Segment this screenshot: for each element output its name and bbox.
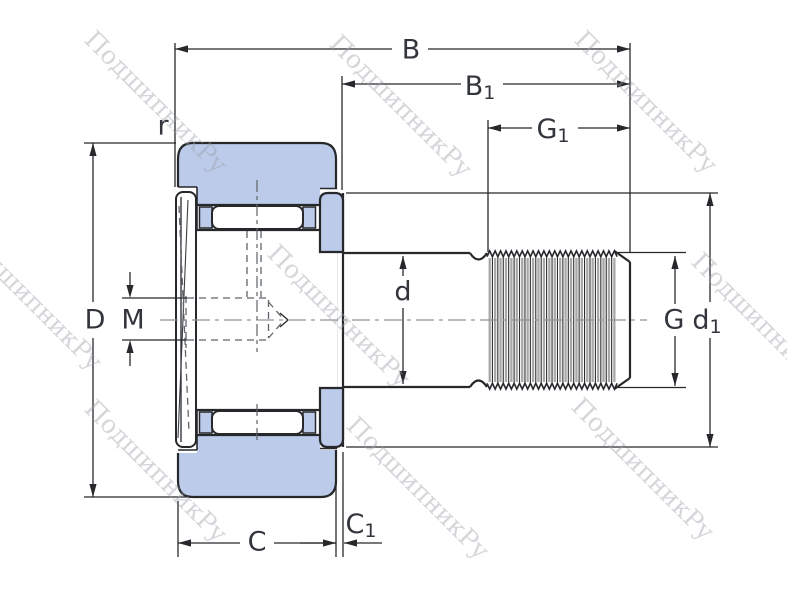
cam-follower-section-drawing: B B1 G1 r D M d G d1 C C1 ПодшипникРу По…	[0, 0, 787, 595]
thread-crest-bottom	[487, 383, 617, 389]
dim-label-d: d	[394, 277, 411, 308]
flange-collar-top	[320, 193, 343, 252]
dim-label-D: D	[85, 305, 106, 336]
watermark-text: ПодшипникРу	[79, 25, 234, 180]
watermark-text: ПодшипникРу	[566, 392, 721, 547]
cage-block-top-left	[200, 207, 213, 228]
thread-relief-notch-top	[470, 253, 487, 260]
dim-label-G1: G1	[536, 114, 569, 148]
bearing-drawing-canvas: B B1 G1 r D M d G d1 C C1 ПодшипникРу По…	[0, 0, 787, 595]
flange-collar-bottom	[320, 388, 343, 447]
dim-label-C1: C1	[346, 509, 377, 543]
dim-label-C: C	[248, 527, 267, 558]
dim-label-B: B	[402, 35, 421, 66]
cage-block-top-right	[303, 207, 316, 228]
watermark-text: ПодшипникРу	[0, 222, 108, 377]
thread-relief-notch-bottom	[470, 381, 487, 388]
dim-label-M: M	[121, 305, 144, 336]
dim-label-d1: d1	[692, 305, 721, 339]
dim-label-G: G	[664, 305, 685, 336]
dim-label-B1: B1	[465, 71, 496, 105]
thread-crest-top	[487, 251, 617, 257]
cage-block-bottom-right	[303, 412, 316, 433]
watermark-text: ПодшипникРу	[569, 25, 724, 180]
watermark-text: ПодшипникРу	[341, 411, 496, 566]
cage-block-bottom-left	[200, 412, 213, 433]
